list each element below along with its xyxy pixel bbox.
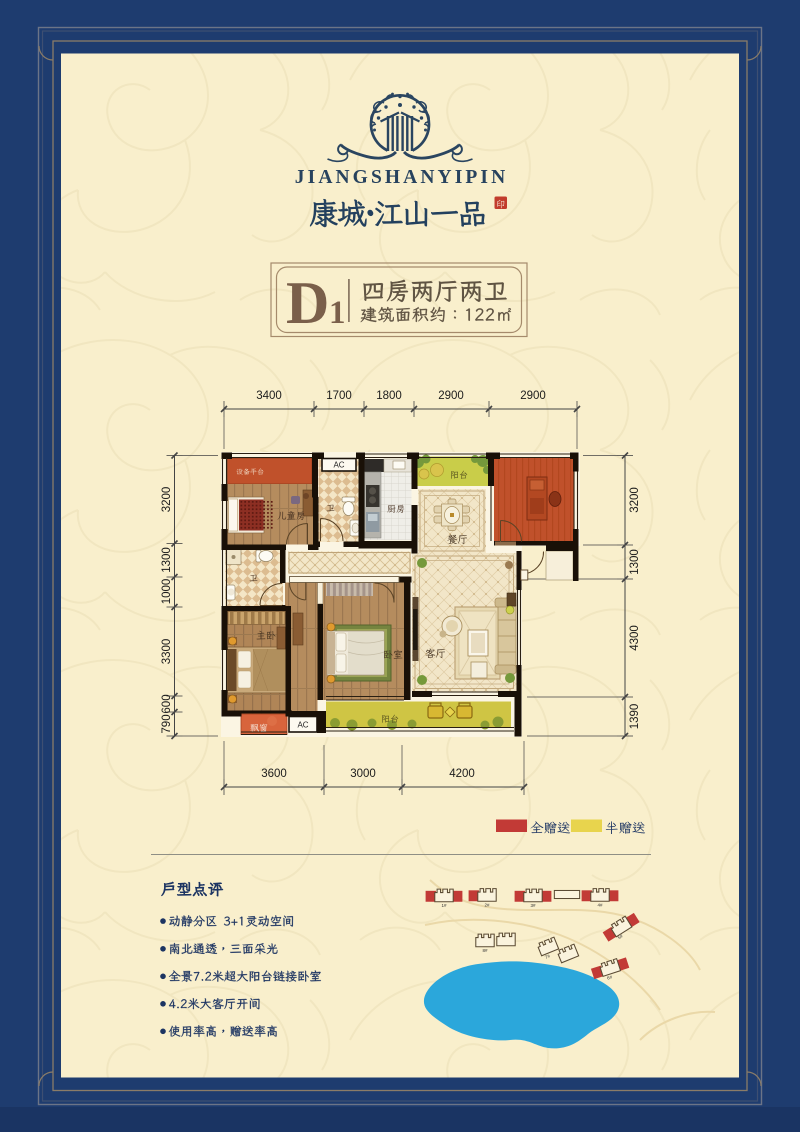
svg-text:4#: 4# [597, 903, 603, 908]
svg-text:1300: 1300 [629, 549, 641, 575]
svg-text:AC: AC [297, 721, 308, 730]
svg-text:1390: 1390 [629, 704, 641, 730]
svg-text:8#: 8# [482, 948, 488, 953]
svg-text:2#: 2# [484, 903, 490, 908]
svg-text:3300: 3300 [161, 639, 173, 665]
svg-text:3600: 3600 [261, 768, 287, 780]
svg-text:3400: 3400 [256, 390, 282, 402]
svg-text:2900: 2900 [520, 390, 546, 402]
svg-text:3000: 3000 [350, 768, 376, 780]
svg-text:1300: 1300 [161, 547, 173, 573]
svg-text:1700: 1700 [326, 390, 352, 402]
svg-text:1000: 1000 [161, 579, 173, 605]
svg-text:D: D [286, 270, 329, 336]
svg-text:790: 790 [161, 714, 173, 733]
svg-text:2900: 2900 [438, 390, 464, 402]
svg-text:4200: 4200 [449, 768, 475, 780]
svg-text:6#: 6# [606, 974, 613, 980]
svg-text:7#: 7# [544, 953, 551, 960]
svg-text:3200: 3200 [161, 487, 173, 513]
svg-text:3200: 3200 [629, 487, 641, 513]
svg-text:5#: 5# [617, 933, 624, 940]
svg-text:1: 1 [329, 295, 346, 331]
svg-text:600: 600 [161, 694, 173, 713]
svg-text:AC: AC [333, 461, 344, 470]
svg-text:1#: 1# [441, 903, 447, 908]
svg-text:1800: 1800 [376, 390, 402, 402]
svg-text:4300: 4300 [629, 625, 641, 651]
svg-text:3#: 3# [530, 903, 536, 908]
